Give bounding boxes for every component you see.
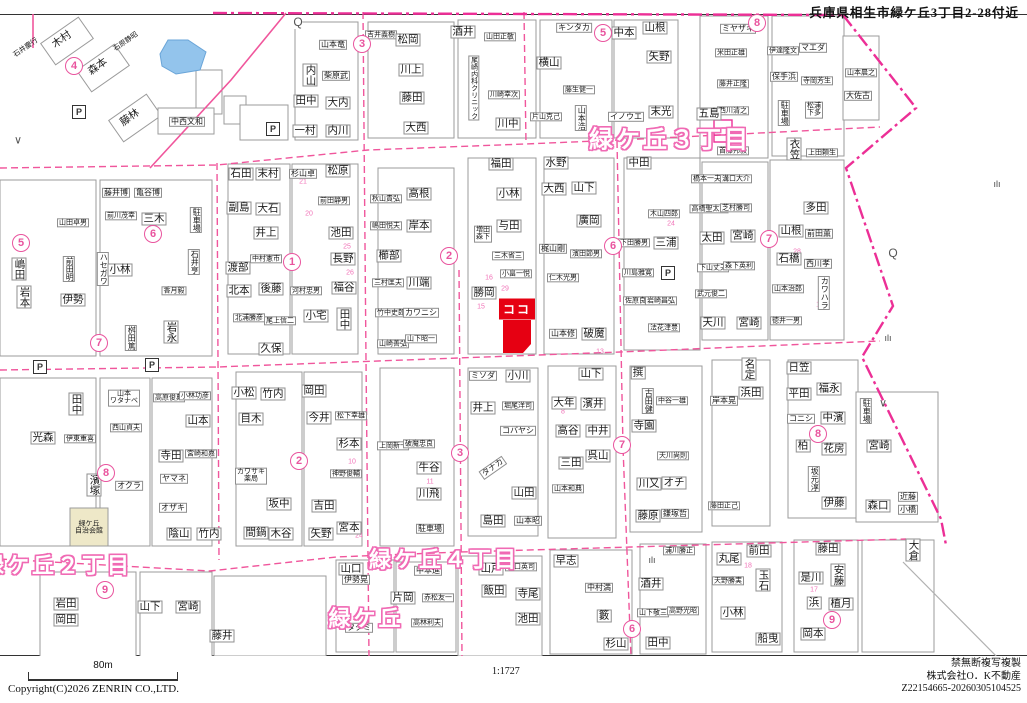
map-label: マエダ	[799, 43, 827, 53]
map-label: 中西文和	[169, 117, 205, 127]
map-label: 大年	[552, 396, 577, 409]
parking-icon: P	[72, 105, 86, 119]
map-label: 増田 森下	[474, 226, 492, 243]
map-label: 松岡	[396, 33, 421, 46]
map-label: 駐車場	[190, 207, 202, 233]
map-label: 大内	[326, 96, 351, 109]
map-label: 山根	[643, 21, 668, 34]
parking-icon: P	[145, 358, 159, 372]
copyright: Copyright(C)2026 ZENRIN CO.,LTD.	[8, 683, 179, 695]
map-label: 井上	[471, 401, 496, 414]
map-label: 杉本	[337, 437, 362, 450]
map-label: 石田	[229, 167, 254, 180]
circled-block-number: 5	[12, 234, 30, 252]
map-label: 石井亨	[188, 249, 200, 275]
map-label: 伊東重喜	[64, 434, 96, 443]
district-label: 緑ケ丘４丁目	[369, 542, 519, 574]
map-label: 宮崎和嘉	[185, 449, 217, 458]
map-label: 一村	[293, 124, 318, 137]
map-label: 濱井	[581, 397, 606, 410]
map-label: 寺尾	[516, 587, 541, 600]
map-label: 末村	[256, 167, 281, 180]
map-label: 武元俊二	[695, 289, 727, 298]
map-label: 藤田	[816, 542, 841, 555]
map-label: 岡田	[302, 384, 327, 397]
lot-number: 21	[299, 179, 307, 186]
circled-block-number: 9	[96, 581, 114, 599]
map-label: 天川尚則	[657, 451, 689, 460]
map-label: 中谷一雄	[656, 396, 688, 405]
map-label: 森本	[85, 56, 110, 78]
map-label: 森口	[866, 499, 891, 512]
parking-icon: P	[661, 266, 675, 280]
map-label: 内川	[326, 124, 351, 137]
map-label: 川上	[399, 63, 424, 76]
map-label: 櫛部	[377, 249, 402, 262]
map-label: 大佐古	[844, 91, 872, 101]
map-label: 後藤	[259, 282, 284, 295]
map-label: 小林	[497, 187, 522, 200]
map-label: 久保	[259, 342, 284, 355]
map-label: 山田	[512, 486, 537, 499]
cemetery-icon: ılı	[884, 333, 891, 343]
map-label: 川端	[407, 276, 432, 289]
map-label: 呉山	[586, 449, 611, 462]
map-label: 西山貞夫	[110, 423, 142, 432]
map-label: 小林	[108, 263, 133, 276]
map-label: 川島雅寛	[622, 268, 654, 277]
map-label: 福田	[489, 157, 514, 170]
map-label: 桝田篤	[125, 325, 137, 351]
map-label: 駐車場	[860, 398, 872, 424]
map-label: 嶋田悦夫	[370, 221, 402, 230]
map-label: 矢野	[647, 50, 672, 63]
map-label: 片山克己	[530, 112, 562, 121]
parking-icon: P	[266, 122, 280, 136]
page: 兵庫県相生市緑ケ丘3丁目2-28付近	[0, 0, 1027, 703]
map-label: 山本竜	[319, 40, 347, 50]
cemetery-icon: ılı	[993, 179, 1000, 189]
map-label: 山本治郎	[772, 284, 804, 293]
lot-number: 18	[744, 563, 752, 570]
lot-number: 8	[561, 409, 565, 416]
map-label: 名定	[741, 358, 756, 381]
map-label: 高野光昭	[667, 606, 699, 615]
circled-block-number: 2	[290, 452, 308, 470]
map-label: 破魔	[582, 327, 607, 340]
map-label: 三木省三	[492, 251, 524, 260]
district-label: 緑ケ丘３丁目	[589, 120, 751, 155]
map-label: タナカ	[479, 456, 508, 481]
lot-number: 15	[477, 304, 485, 311]
map-label: 宮崎	[737, 316, 762, 329]
map-label: 駐車場	[778, 100, 790, 126]
map-label: 中村満	[585, 583, 613, 593]
map-label: 山本和典	[552, 484, 584, 493]
lot-number: 29	[501, 286, 509, 293]
map-label: 三田	[559, 456, 584, 469]
map-label: 小川	[506, 369, 531, 382]
map-label: 北浦勝彦	[233, 313, 265, 322]
map-label: 堀尾洋司	[502, 401, 534, 410]
circled-block-number: 5	[594, 24, 612, 42]
map-label: 梶山剛	[539, 244, 567, 254]
map-label: 大倉	[905, 539, 920, 562]
lot-number: 25	[343, 244, 351, 251]
map-label: 岸本	[407, 219, 432, 232]
map-label: 上田頼生	[806, 148, 838, 157]
map-label: 米田正雄	[715, 48, 747, 57]
map-label: 撰	[631, 366, 646, 379]
q-symbol: Q	[888, 246, 897, 260]
district-label: 緑ケ丘２丁目	[0, 548, 132, 580]
map-label: 浜田	[739, 386, 764, 399]
map-label: 藤原	[636, 509, 661, 522]
map-label: コニシ	[787, 414, 815, 424]
map-label: カワサキ 薬局	[235, 468, 267, 485]
map-label: 光森	[31, 431, 56, 444]
map-label: 破魔忠良	[403, 439, 435, 448]
map-label: 目木	[239, 412, 264, 425]
map-label: 岩永	[163, 321, 178, 344]
map-label: 藤田正己	[708, 501, 740, 510]
map-label: 大西	[404, 121, 429, 134]
map-label: 近藤	[898, 492, 918, 502]
map-label: 田中	[646, 636, 671, 649]
map-label: 宮崎	[176, 600, 201, 613]
map-label: 西川清之	[717, 106, 749, 115]
map-label: 西川孝	[804, 259, 832, 269]
map-label: 嶋田	[11, 258, 26, 281]
scale-label: 80m	[28, 660, 178, 671]
scale-bar-line	[28, 672, 178, 681]
q-symbol: Q	[293, 15, 302, 29]
map-label: 岡田	[54, 613, 79, 626]
map-label: 前田静男	[318, 196, 350, 205]
map-label: 川崎幸次	[488, 90, 520, 99]
serial-number: Z22154665-20260305104525	[902, 683, 1021, 696]
map-label: オザキ	[159, 503, 187, 513]
map-label: 寺田	[159, 449, 184, 462]
map-label: 伊藤	[822, 496, 847, 509]
map-label: 今井	[307, 411, 332, 424]
map-label: 山本	[186, 414, 211, 427]
map-label: 水野	[544, 156, 569, 169]
map-label: 副島	[227, 201, 252, 214]
map-label: 木村	[49, 29, 74, 51]
scale-ratio: 1:1727	[492, 666, 520, 677]
map-label: 太田	[700, 231, 725, 244]
circled-block-number: 3	[451, 444, 469, 462]
map-label: 天川	[701, 316, 726, 329]
map-label: コバヤシ	[500, 426, 536, 436]
map-label: 岩本	[16, 286, 31, 309]
map-label: 岩崎昌弘	[645, 296, 677, 305]
map-label: 寺岡芳生	[801, 76, 833, 85]
map-label: 山下	[579, 367, 604, 380]
map-label: 籔	[597, 609, 612, 622]
map-label: 川又	[637, 477, 662, 490]
map-label: 早志	[554, 554, 579, 567]
map-label: 中田	[627, 156, 652, 169]
circled-block-number: 7	[90, 334, 108, 352]
map-label: 松原	[326, 164, 351, 177]
map-label: 高林利夫	[411, 618, 443, 627]
map-label: 下田勝男	[618, 238, 650, 247]
map-label: 藤生健一	[563, 85, 595, 94]
map-label: 天野勝実	[712, 576, 744, 585]
map-label: 法花津豊	[648, 323, 680, 332]
map-label: 前田	[747, 544, 772, 557]
map-label: 島田	[481, 514, 506, 527]
map-label: 尾崎内科クリニック	[468, 56, 479, 121]
map-label: カワハラ	[818, 276, 830, 310]
map-label: カワニシ	[403, 308, 439, 318]
map-label: 廣岡	[577, 214, 602, 227]
map-label: 木谷	[269, 527, 294, 540]
circled-block-number: 7	[760, 230, 778, 248]
map-canvas[interactable]: 木村森本藤林石井慶行石原静昭中西文和山本竜内山柴原武田中大内一村内川吉井義樹松岡…	[0, 0, 1027, 703]
map-label: 秋山貴弘	[370, 194, 402, 203]
map-label: 竹内	[261, 387, 286, 400]
map-label: 小林功彦	[179, 391, 211, 400]
map-label: 藤田	[400, 91, 425, 104]
map-label: 中村憲市	[250, 254, 282, 263]
map-label: 緑ケ丘 自治会館	[74, 521, 104, 536]
map-label: 石原静昭	[112, 30, 141, 53]
map-label: 柴原武	[322, 71, 350, 81]
map-label: 池田	[329, 226, 354, 239]
map-label: 藤井	[210, 629, 235, 642]
map-label: 鎌塚哲	[661, 509, 689, 519]
lot-number: 24	[667, 221, 675, 228]
map-label: 三村匡夫	[372, 278, 404, 287]
map-label: 中井	[586, 424, 611, 437]
map-label: 松浦 下多	[805, 102, 823, 119]
map-label: 中本	[612, 26, 637, 39]
map-label: 尾上信二	[264, 316, 296, 325]
circled-block-number: 6	[623, 620, 641, 638]
map-label: 保手浜	[770, 72, 798, 82]
map-label: 花房	[822, 442, 847, 455]
map-label: 是川	[799, 571, 824, 584]
map-label: 勝岡	[472, 286, 497, 299]
map-label: 岸本晃	[710, 396, 738, 406]
map-label: 衣笠	[786, 138, 801, 161]
map-label: 田中	[68, 393, 83, 416]
map-label: 藤林	[117, 107, 142, 129]
circled-block-number: 9	[823, 611, 841, 629]
check-symbol: ∨	[14, 134, 22, 147]
copy-notice: 禁無断複写複製	[902, 658, 1021, 671]
map-label: 平田	[787, 387, 812, 400]
map-label: 吉井義樹	[365, 30, 397, 39]
map-label: 大西	[542, 182, 567, 195]
map-label: 酒井	[451, 25, 476, 38]
map-label: 伊達隆文	[767, 46, 799, 55]
map-label: 松下幸雄	[335, 411, 367, 420]
map-label: 濱田節男	[570, 249, 602, 258]
company-name: 株式会社O．K不動産	[902, 671, 1021, 684]
map-label: 前川茂幸	[105, 211, 137, 220]
map-label: 植月	[829, 597, 854, 610]
map-label: 中濱	[821, 411, 846, 424]
map-label: 小林	[721, 606, 746, 619]
map-label: 前田明	[63, 256, 75, 282]
map-label: 神野俊輔	[330, 469, 362, 478]
map-label: 山本 ワタナベ	[108, 390, 140, 407]
district-label: 緑ケ丘	[328, 601, 403, 633]
circled-block-number: 6	[604, 237, 622, 255]
map-label: 山下敬三	[637, 608, 669, 617]
map-label: 飯田	[482, 584, 507, 597]
footer: 80m 1:1727 Copyright(C)2026 ZENRIN CO.,L…	[0, 656, 1027, 703]
map-label: オクラ	[115, 481, 143, 491]
map-label: 小宅	[304, 309, 329, 322]
map-label: 山下	[572, 181, 597, 194]
map-label: 高谷	[556, 424, 581, 437]
check-symbol: ∨	[879, 397, 887, 410]
map-label: オチ	[662, 476, 687, 489]
map-label: 福谷	[332, 281, 357, 294]
circled-block-number: 3	[353, 35, 371, 53]
map-label: 与田	[497, 219, 522, 232]
lot-number: 16	[485, 275, 493, 282]
map-label: 寺園	[632, 419, 657, 432]
map-label: 浦川勝正	[663, 546, 695, 555]
map-label: 山下昭一	[405, 334, 437, 343]
map-label: 大石	[256, 202, 281, 215]
map-label: 船曳	[756, 632, 781, 645]
map-label: 高根	[407, 187, 432, 200]
map-label: 田中	[336, 308, 351, 331]
map-label: 小橋	[898, 505, 918, 515]
map-label: 杉山	[604, 637, 629, 650]
lot-number: 13	[596, 349, 604, 356]
map-label: 横山	[537, 56, 562, 69]
map-label: 溝口大介	[720, 174, 752, 183]
circled-block-number: 4	[65, 57, 83, 75]
map-label: 日笠	[787, 361, 812, 374]
lot-number: 20	[305, 211, 313, 218]
map-label: 前田薫	[805, 229, 833, 239]
target-marker: ココ	[499, 299, 535, 320]
map-label: 浜	[807, 596, 822, 609]
map-label: 芝村勝司	[720, 203, 752, 212]
map-label: 森下英利	[723, 261, 755, 270]
map-label: 岡本	[801, 627, 826, 640]
map-label: 藤井正隆	[717, 79, 749, 88]
map-label: 山田卓男	[57, 218, 89, 227]
map-label: 丸尾	[717, 552, 742, 565]
map-label: 徳井一男	[770, 316, 802, 325]
map-label: 柏	[796, 439, 811, 452]
lot-number: 17	[810, 587, 818, 594]
map-label: 宮本	[337, 521, 362, 534]
map-label: 川中	[496, 117, 521, 130]
map-label: 橋本一夫	[691, 174, 723, 183]
map-label: 末光	[649, 105, 674, 118]
lot-number: 26	[346, 270, 354, 277]
map-label: 川飛	[417, 487, 442, 500]
map-label: 牛谷	[417, 461, 442, 474]
map-label: ヤマネ	[160, 474, 188, 484]
map-label: 伊勢	[61, 293, 86, 306]
circled-block-number: 8	[748, 14, 766, 32]
circled-block-number: 8	[809, 425, 827, 443]
circled-block-number: 2	[440, 247, 458, 265]
map-label: 長野	[331, 252, 356, 265]
circled-block-number: 6	[144, 225, 162, 243]
scale-bar: 80m	[28, 660, 178, 681]
map-label: 宮崎	[867, 439, 892, 452]
map-label: 山口	[339, 562, 364, 575]
map-label: 池田	[516, 612, 541, 625]
map-label: 香月毅	[162, 286, 187, 295]
map-label: 山本晨之	[845, 68, 877, 77]
map-label: 三木	[142, 212, 167, 225]
map-label: 三浦	[654, 236, 679, 249]
parking-icon: P	[33, 360, 47, 374]
map-label: 矢野	[309, 527, 334, 540]
map-label: 木山四郎	[648, 209, 680, 218]
map-label: 多田	[804, 201, 829, 214]
map-label: 酒井	[639, 577, 664, 590]
map-label: 北本	[227, 284, 252, 297]
map-label: 宮崎	[731, 229, 756, 242]
cemetery-icon: ılı	[648, 555, 655, 565]
map-label: ミソダ	[469, 371, 497, 381]
map-label: 駐車場	[416, 524, 444, 534]
map-label: 藤井博	[102, 188, 130, 198]
lot-number: 11	[426, 479, 433, 486]
map-label: 内山	[302, 64, 317, 87]
map-label: 山本昭	[514, 516, 542, 526]
map-label: 坂中	[267, 497, 292, 510]
page-title: 兵庫県相生市緑ケ丘3丁目2-28付近	[809, 2, 1019, 21]
map-label: キンタカ	[556, 23, 592, 33]
legal-block: 禁無断複写複製 株式会社O．K不動産 Z22154665-20260305104…	[902, 658, 1021, 696]
circled-block-number: 8	[97, 464, 115, 482]
map-label: 玉石	[755, 569, 770, 592]
map-label: 河村忠男	[290, 286, 322, 295]
circled-block-number: 1	[283, 253, 301, 271]
map-label: 山本修	[549, 329, 577, 339]
map-label: 陰山	[167, 527, 192, 540]
map-label: 小畠一悦	[500, 269, 532, 278]
map-label: 間鍋	[244, 526, 269, 539]
map-label: 山田正敏	[484, 32, 516, 41]
lot-number: 10	[348, 459, 356, 466]
map-label: 岩田	[54, 597, 79, 610]
map-label: 仁木光男	[547, 273, 579, 282]
map-label: 杉山卓	[289, 169, 317, 179]
map-label: 福永	[817, 382, 842, 395]
map-label: 渡部	[226, 261, 251, 274]
map-label: 石井慶行	[12, 36, 41, 59]
map-label: 竹内	[197, 527, 222, 540]
circled-block-number: 7	[613, 436, 631, 454]
map-label: 山下	[138, 600, 163, 613]
map-label: 坂元淳	[808, 466, 820, 492]
map-label: 吉田	[312, 499, 337, 512]
map-label: 古田健	[642, 388, 654, 414]
map-label: 亀谷博	[134, 188, 162, 198]
map-label: 山根	[779, 224, 804, 237]
map-label: 田中	[294, 94, 319, 107]
map-label: 山本浩	[575, 105, 587, 131]
map-label: 小松	[232, 386, 257, 399]
